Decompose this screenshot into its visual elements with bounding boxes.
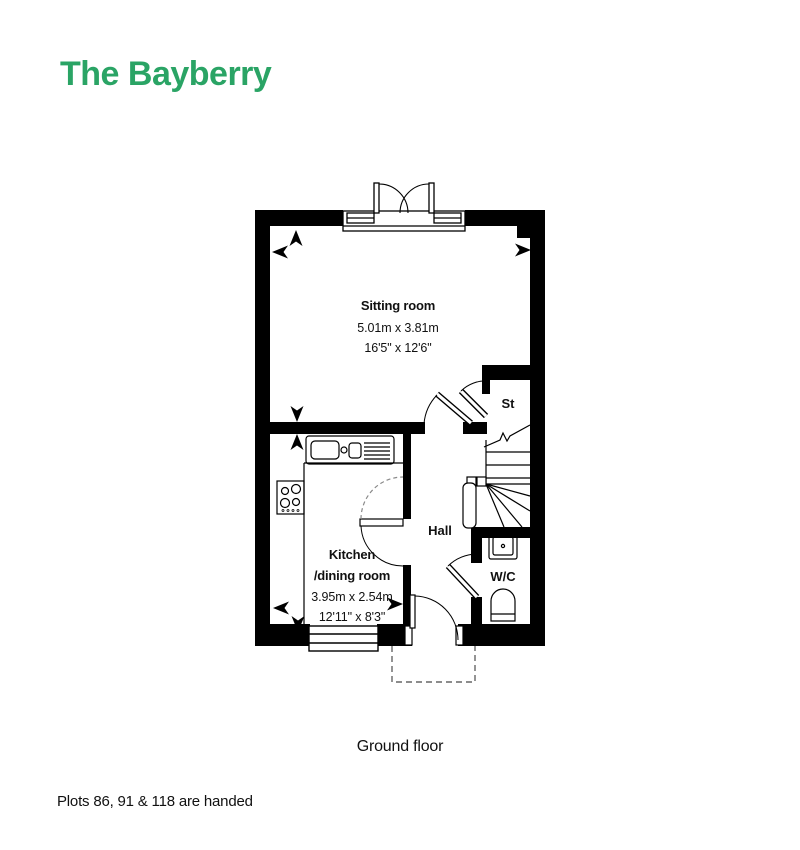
kitchen-label: Kitchen /dining room 3.95m x 2.54m 12'11… [277, 545, 427, 627]
hall-label: Hall [418, 521, 462, 541]
floor-caption: Ground floor [0, 738, 800, 756]
french-doors [343, 183, 465, 231]
kitchen-name-line1: Kitchen [277, 545, 427, 566]
kitchen-imperial: 12'11" x 8'3" [277, 607, 427, 627]
sitting-room-imperial: 16'5" x 12'6" [308, 339, 488, 358]
kitchen-sink [306, 436, 394, 464]
st-label: St [493, 394, 523, 414]
arrow-left-icon [272, 246, 288, 259]
hob [277, 481, 304, 514]
handed-plots-note: Plots 86, 91 & 118 are handed [57, 793, 253, 810]
sitting-room-door [424, 394, 471, 424]
floorplan-page: The Bayberry [0, 0, 800, 850]
kitchen-metric: 3.95m x 2.54m [277, 587, 427, 607]
arrow-up-icon [290, 230, 303, 246]
sitting-room-metric: 5.01m x 3.81m [308, 319, 488, 338]
wc-label: W/C [481, 567, 525, 587]
sitting-room-name: Sitting room [308, 296, 488, 316]
kitchen-name-line2: /dining room [277, 566, 427, 587]
toilet [491, 589, 515, 621]
arrow-right-icon [515, 244, 531, 257]
kitchen-window [309, 626, 378, 651]
arrow-down-icon [291, 406, 304, 422]
porch-outline [392, 646, 475, 682]
floorplan-drawing [0, 0, 800, 850]
staircase [463, 425, 530, 528]
sitting-room-label: Sitting room 5.01m x 3.81m 16'5" x 12'6" [308, 296, 488, 358]
arrow-up-icon [291, 434, 304, 450]
